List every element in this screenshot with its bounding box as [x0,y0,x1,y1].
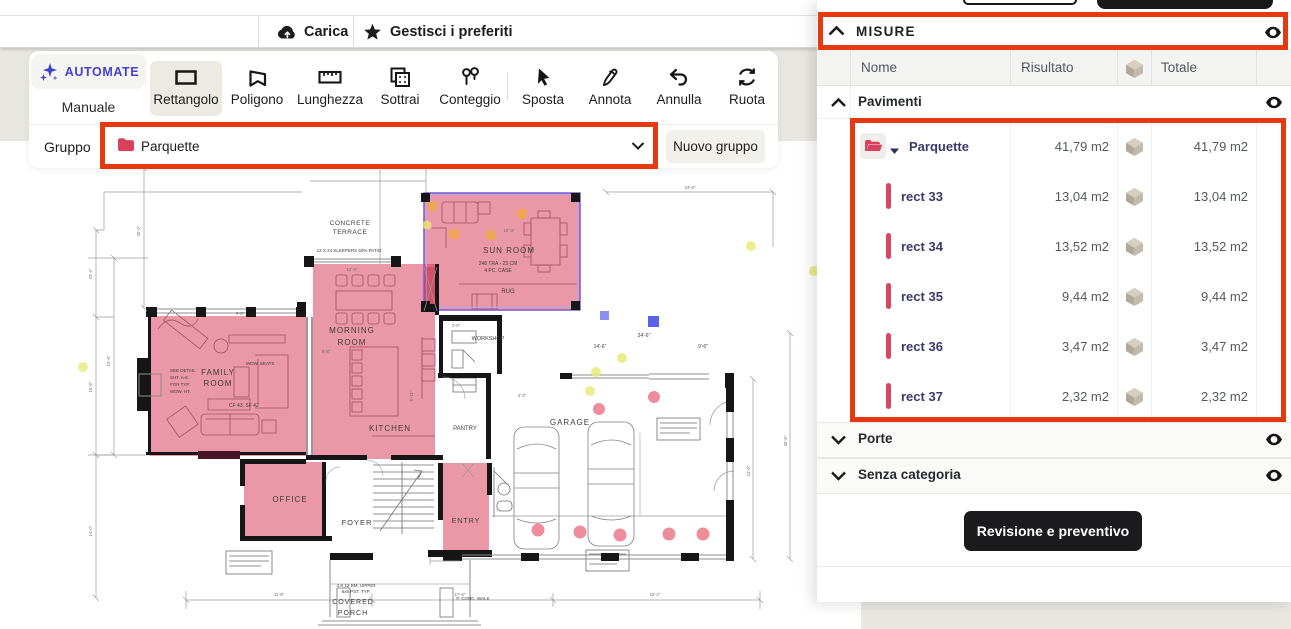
svg-text:ENTRY: ENTRY [452,518,481,525]
svg-text:KITCHEN: KITCHEN [369,424,411,433]
svg-text:5'-11": 5'-11" [409,390,414,401]
svg-text:24'-6": 24'-6" [685,185,696,190]
svg-text:COVERED: COVERED [332,599,374,606]
svg-text:OFFICE: OFFICE [272,495,307,504]
svg-text:14'-0": 14'-0" [88,525,93,536]
svg-text:2'-0": 2'-0" [452,323,461,328]
svg-text:RUG: RUG [501,289,515,295]
svg-text:PORCH: PORCH [338,610,368,617]
svg-text:ROOM: ROOM [204,379,233,388]
svg-text:SEE DETAIL: SEE DETAIL [170,368,196,373]
svg-text:12'-6": 12'-6" [106,355,111,366]
svg-text:FOR TYP.: FOR TYP. [170,382,190,387]
svg-text:4 PC. CASE: 4 PC. CASE [484,268,512,274]
svg-text:14'-6": 14'-6" [594,344,607,350]
svg-text:16'-8": 16'-8" [88,381,93,392]
svg-text:CONCRETE: CONCRETE [330,220,371,227]
svg-text:20'-0": 20'-0" [136,225,141,236]
svg-text:SHT. A-6: SHT. A-6 [170,375,188,380]
svg-text:SUN ROOM: SUN ROOM [483,246,535,255]
svg-text:15'-2": 15'-2" [650,592,661,597]
svg-text:MORNING: MORNING [329,326,375,335]
svg-text:GARAGE: GARAGE [550,418,590,427]
svg-text:16'-4": 16'-4" [504,228,515,233]
svg-text:9'-0": 9'-0" [236,311,245,316]
svg-text:24'-6": 24'-6" [638,333,651,339]
svg-text:WDW. SEATS: WDW. SEATS [246,361,274,366]
svg-text:21'-0": 21'-0" [746,465,751,476]
svg-text:PANTRY: PANTRY [453,426,477,432]
svg-text:12 X 24 SLEEPERS 60% PATIO: 12 X 24 SLEEPERS 60% PATIO [317,248,382,253]
svg-text:FOYER: FOYER [342,518,373,527]
svg-text:3'-4": 3'-4" [518,393,527,398]
svg-text:TERRACE: TERRACE [333,229,368,236]
svg-text:22'-4": 22'-4" [88,268,93,279]
svg-text:6'-8": 6'-8" [322,349,331,354]
svg-text:P. CONC. WALK: P. CONC. WALK [456,596,489,601]
svg-text:6x6 PST. TYP.: 6x6 PST. TYP. [342,589,371,594]
svg-text:30'-6": 30'-6" [783,435,788,446]
svg-text:4 X 12 BM. UPPER: 4 X 12 BM. UPPER [336,583,376,588]
svg-text:248 TRA - 23 CM: 248 TRA - 23 CM [479,261,518,267]
svg-text:FAMILY: FAMILY [201,368,235,377]
svg-text:9'-6": 9'-6" [698,344,708,350]
svg-text:ROOM: ROOM [338,338,367,347]
svg-text:CF 43. SF 42: CF 43. SF 42 [229,403,259,409]
svg-text:11'-8": 11'-8" [274,592,285,597]
svg-text:12'-0": 12'-0" [347,267,358,272]
svg-text:WDW. HT.: WDW. HT. [170,389,191,394]
svg-text:WORKSHOP: WORKSHOP [472,336,505,342]
